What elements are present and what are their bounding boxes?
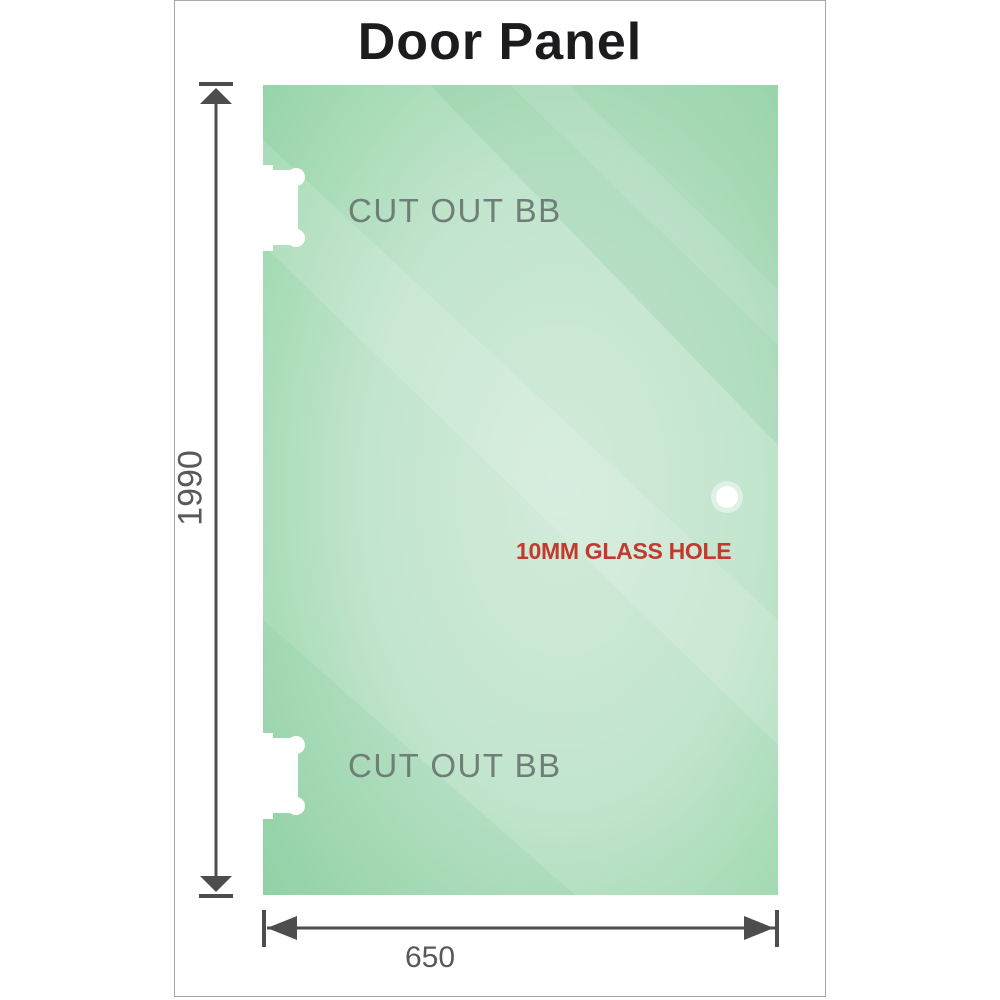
product-drawing-page: Door Panel CUT OUT BB CUT OUT BB 10MM GL… [0, 0, 1000, 1000]
glass-hole [711, 481, 743, 513]
width-dimension-value: 650 [405, 941, 455, 975]
height-dimension-value: 1990 [172, 450, 211, 526]
glass-hole-label: 10MM GLASS HOLE [516, 538, 731, 565]
cutout-top-label: CUT OUT BB [348, 192, 562, 230]
width-dimension-arrow [262, 910, 779, 947]
technical-drawing [0, 0, 1000, 1000]
cutout-bottom-label: CUT OUT BB [348, 747, 562, 785]
page-title: Door Panel [358, 12, 643, 72]
